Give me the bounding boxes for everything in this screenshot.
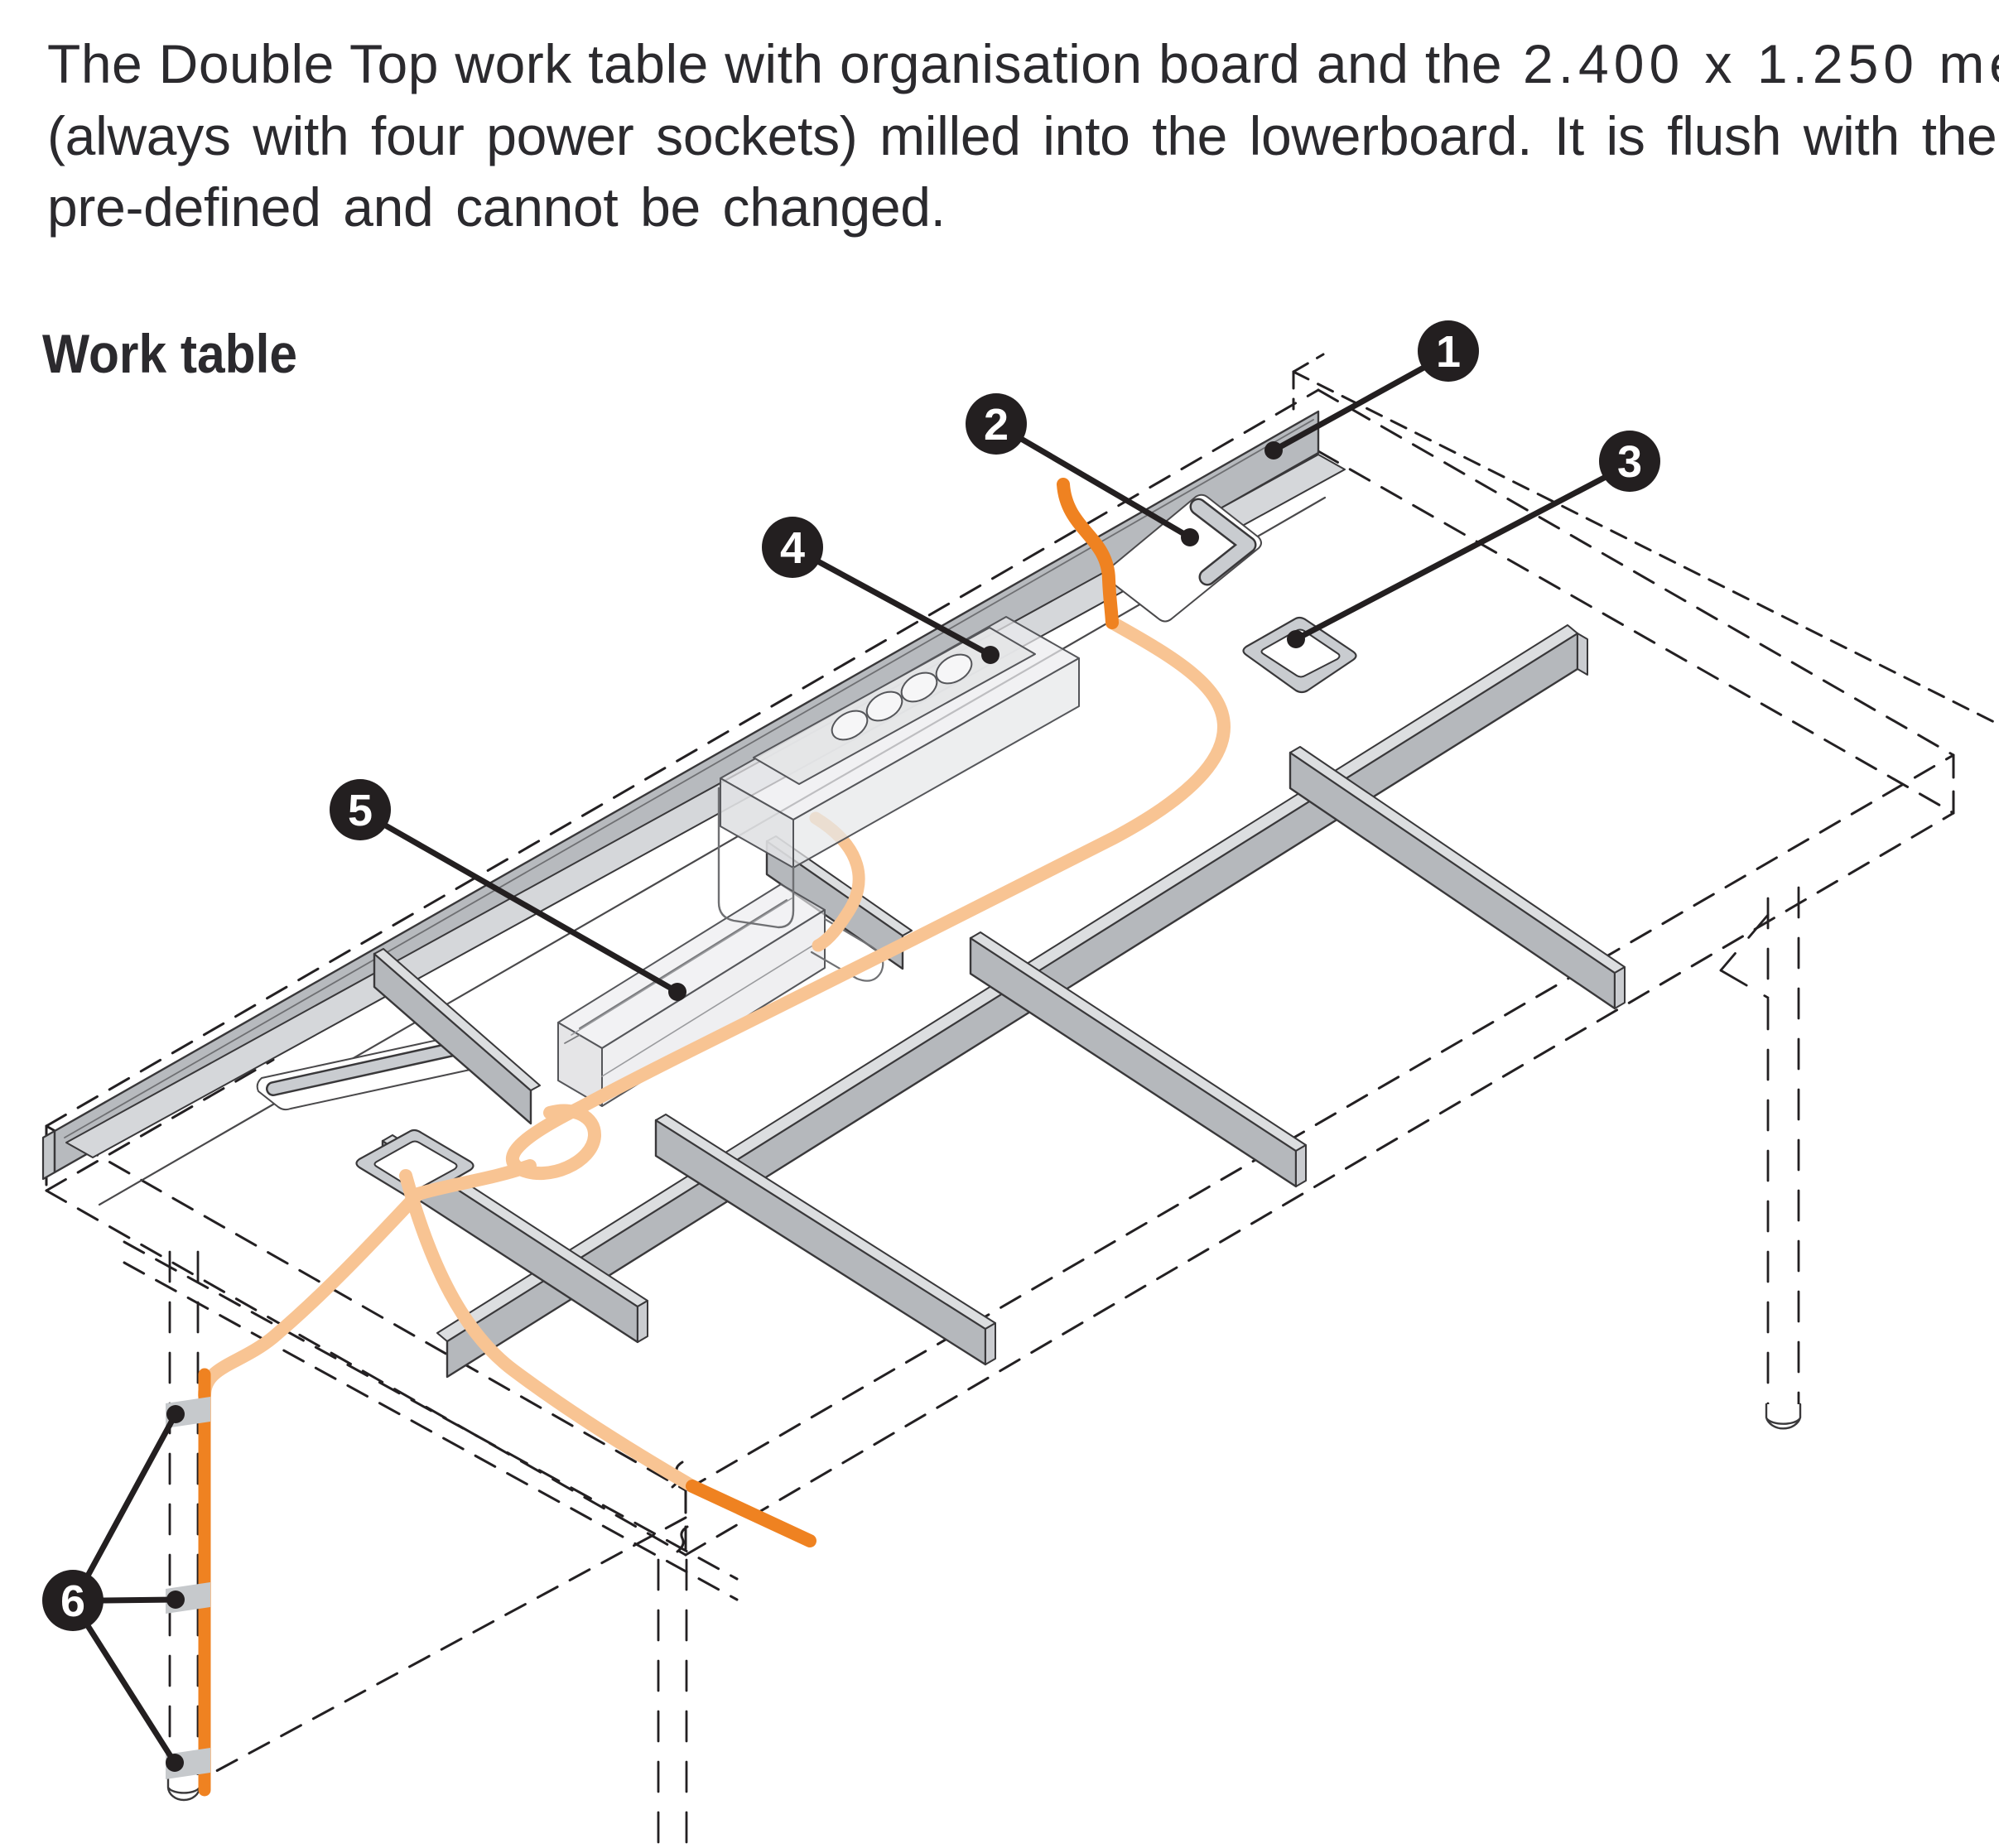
svg-text:5: 5 — [348, 786, 373, 835]
svg-text:pre-defined and cannot be chan: pre-defined and cannot be changed. — [47, 176, 946, 238]
svg-text:2.400 x 1.250 meeting table: 2.400 x 1.250 meeting table — [1523, 33, 1999, 94]
svg-text:(always with four power socket: (always with four power sockets) milled … — [47, 105, 1997, 166]
svg-text:2: 2 — [984, 400, 1009, 450]
svg-text:6: 6 — [60, 1576, 85, 1626]
svg-text:1: 1 — [1436, 327, 1461, 377]
svg-text:4: 4 — [780, 523, 805, 573]
svg-text:The Double Top work table with: The Double Top work table with organisat… — [47, 33, 1502, 94]
svg-text:Work table: Work table — [42, 323, 297, 384]
svg-text:3: 3 — [1617, 437, 1642, 487]
